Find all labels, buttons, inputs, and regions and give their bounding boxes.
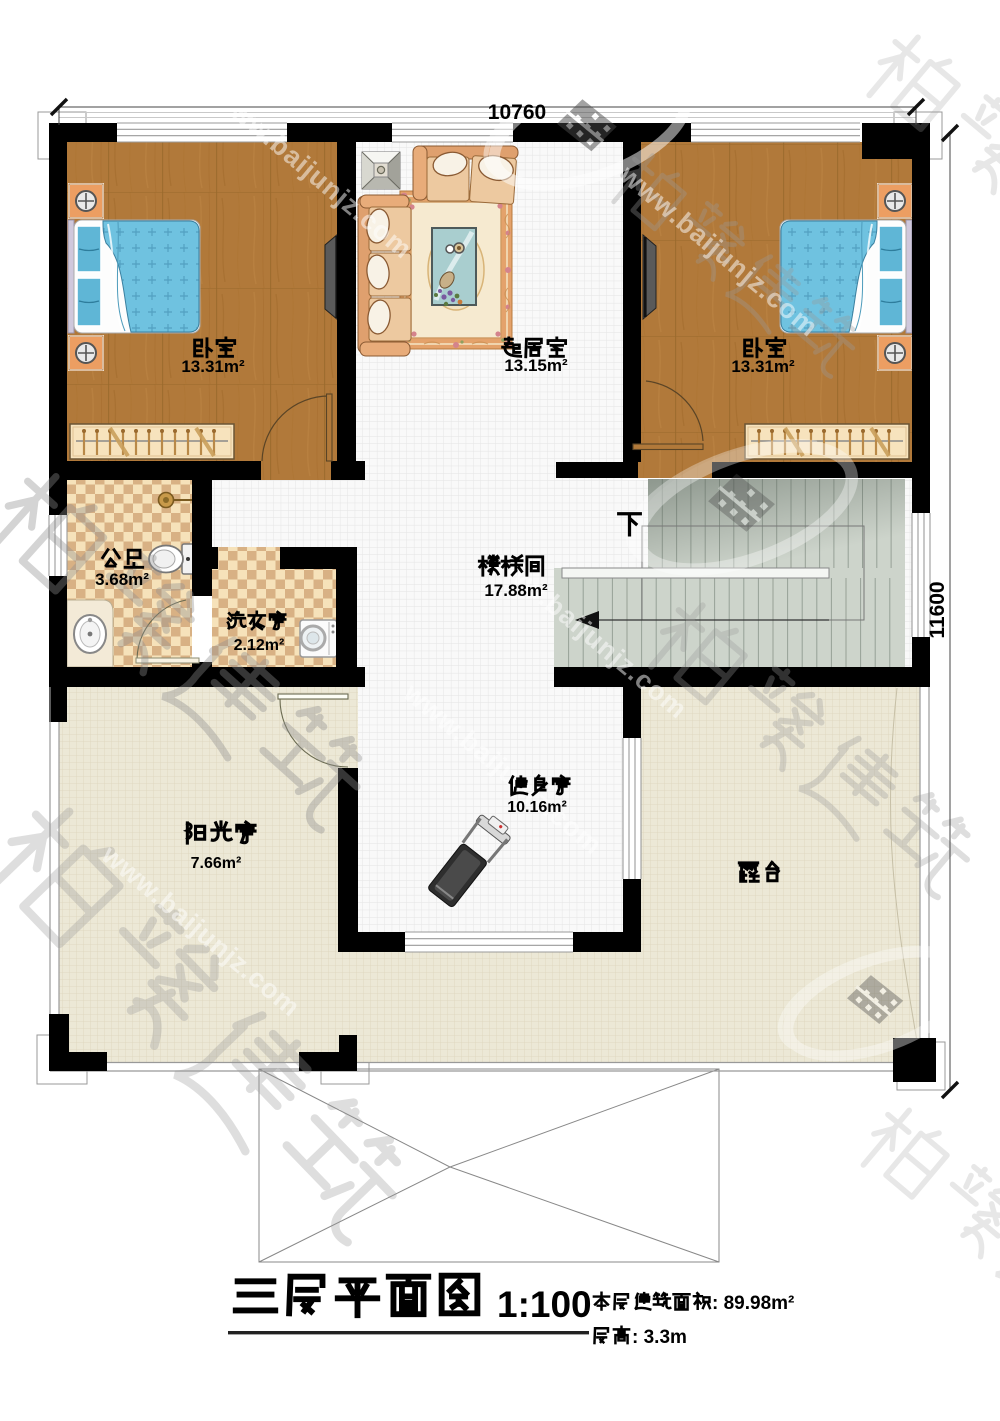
svg-text:7.66m²: 7.66m² (191, 855, 242, 872)
svg-text:10.16m²: 10.16m² (507, 799, 567, 816)
svg-text:3.68m²: 3.68m² (95, 570, 149, 589)
svg-text:1:100: 1:100 (497, 1284, 592, 1325)
svg-text:: 89.98m²: : 89.98m² (712, 1293, 794, 1314)
svg-text:10760: 10760 (488, 101, 546, 124)
svg-text:13.15m²: 13.15m² (504, 356, 568, 375)
svg-text:13.31m²: 13.31m² (731, 357, 795, 376)
svg-text:17.88m²: 17.88m² (484, 581, 548, 600)
svg-text:2.12m²: 2.12m² (234, 637, 285, 654)
svg-text:: 3.3m: : 3.3m (632, 1327, 687, 1348)
svg-text:11600: 11600 (926, 581, 949, 638)
svg-text:13.31m²: 13.31m² (181, 357, 245, 376)
